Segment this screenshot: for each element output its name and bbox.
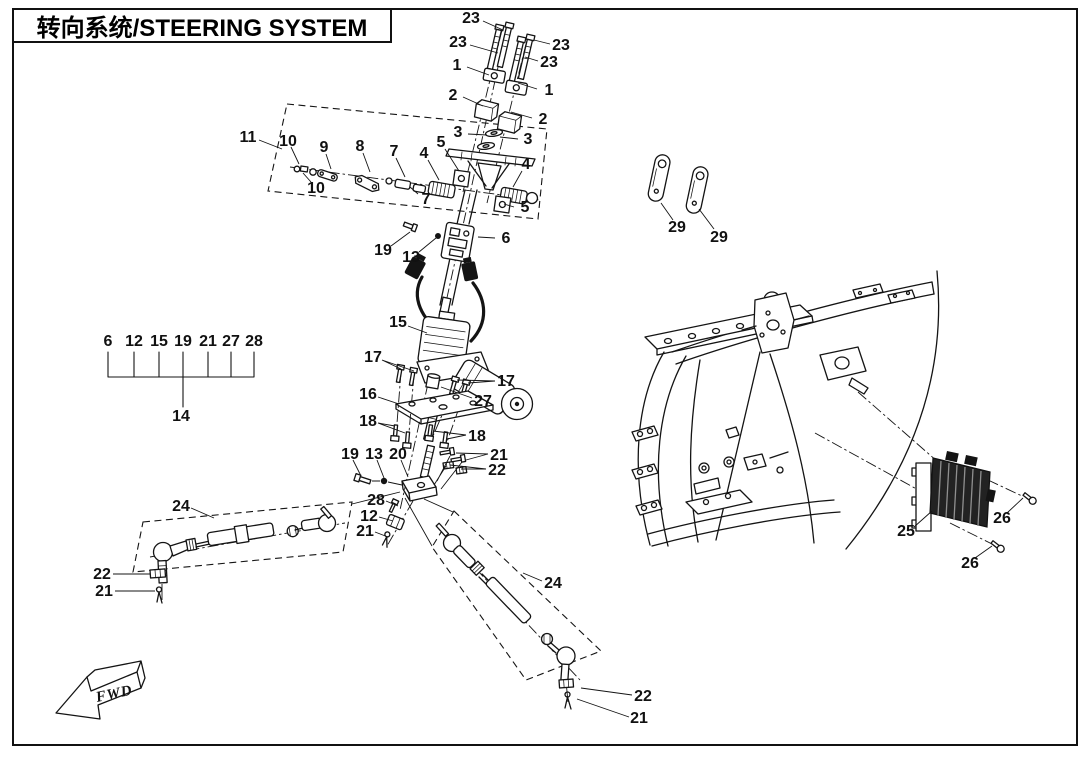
callout-9: 9 bbox=[320, 139, 329, 156]
page-title: 转向系统/STEERING SYSTEM bbox=[37, 8, 368, 43]
callout-5: 5 bbox=[437, 134, 446, 151]
callout-26: 26 bbox=[961, 555, 979, 572]
callout-23: 23 bbox=[462, 10, 480, 27]
washer bbox=[477, 142, 495, 151]
strap-29 bbox=[647, 153, 671, 202]
strap-29 bbox=[685, 165, 709, 214]
callout-24: 24 bbox=[172, 498, 190, 515]
callout-29: 29 bbox=[710, 229, 728, 246]
callout-3: 3 bbox=[454, 124, 463, 141]
bolt-26 bbox=[990, 539, 1006, 553]
callout-27: 27 bbox=[474, 393, 492, 410]
bolt-19-lower bbox=[354, 474, 371, 486]
callout-24: 24 bbox=[544, 575, 562, 592]
callout-21: 21 bbox=[356, 523, 374, 540]
callout-13: 13 bbox=[402, 249, 420, 266]
legend-group: 14 6121519212728 bbox=[104, 333, 263, 425]
ball-joint bbox=[154, 543, 173, 562]
castle-nut-22 bbox=[150, 569, 166, 578]
centerlines bbox=[150, 22, 1022, 680]
callout-4: 4 bbox=[522, 156, 531, 173]
legend-group-label: 14 bbox=[172, 408, 190, 425]
steering-tower bbox=[754, 293, 794, 353]
callout-18: 18 bbox=[359, 413, 377, 430]
callout-22: 22 bbox=[634, 688, 652, 705]
legend-item-12: 12 bbox=[125, 333, 143, 350]
jam-nut bbox=[186, 538, 197, 550]
callout-23: 23 bbox=[449, 34, 467, 51]
frame bbox=[632, 271, 939, 549]
handlebar-clamp-upper bbox=[483, 68, 506, 83]
tie-rod-body bbox=[207, 521, 275, 548]
callout-20: 20 bbox=[389, 446, 407, 463]
parts-diagram-page: 转向系统/STEERING SYSTEM bbox=[0, 0, 1090, 760]
callout-19: 19 bbox=[374, 242, 392, 259]
callout-2: 2 bbox=[539, 111, 548, 128]
legend-item-28: 28 bbox=[245, 333, 263, 350]
cable bbox=[471, 283, 484, 341]
callout-11: 11 bbox=[240, 129, 257, 146]
callout-21: 21 bbox=[95, 583, 113, 600]
title-box: 转向系统/STEERING SYSTEM bbox=[12, 8, 392, 43]
ball-13-lower bbox=[381, 478, 387, 484]
callout-10: 10 bbox=[279, 133, 297, 150]
callout-8: 8 bbox=[356, 138, 365, 155]
bolt-18 bbox=[391, 425, 400, 442]
callout-2: 2 bbox=[449, 87, 458, 104]
square-plate-5 bbox=[494, 196, 511, 213]
leader-lines bbox=[113, 21, 1023, 717]
legend-item-27: 27 bbox=[222, 333, 240, 350]
callout-28: 28 bbox=[367, 492, 385, 509]
legend-item-19: 19 bbox=[174, 333, 192, 350]
callout-10: 10 bbox=[307, 180, 325, 197]
legend-item-6: 6 bbox=[104, 333, 113, 350]
fwd-label: FWD bbox=[94, 683, 135, 707]
callout-19: 19 bbox=[341, 446, 359, 463]
callout-1: 1 bbox=[453, 57, 462, 74]
callout-7: 7 bbox=[390, 143, 399, 160]
straps bbox=[647, 153, 709, 214]
pitman-arm bbox=[402, 476, 436, 493]
bushing-4 bbox=[428, 181, 456, 198]
callout-23: 23 bbox=[540, 54, 558, 71]
callout-6: 6 bbox=[502, 230, 511, 247]
square-plate-5 bbox=[453, 170, 470, 187]
cotter-pin-21 bbox=[565, 692, 571, 709]
callout-23: 23 bbox=[552, 37, 570, 54]
bolt-19-upper bbox=[403, 221, 418, 232]
callout-22: 22 bbox=[93, 566, 111, 583]
callout-7: 7 bbox=[422, 191, 431, 208]
bolt-26 bbox=[1022, 491, 1038, 505]
castle-nut-22 bbox=[559, 679, 574, 688]
callout-4: 4 bbox=[420, 145, 429, 162]
riser-block bbox=[474, 99, 499, 122]
ball-joint bbox=[557, 647, 575, 665]
callout-17: 17 bbox=[364, 349, 382, 366]
callout-16: 16 bbox=[359, 386, 377, 403]
diagram-canvas: FWD 14 6121519212728 2323232311223354451… bbox=[0, 0, 1090, 760]
tie-rod-right bbox=[436, 523, 575, 709]
callout-3: 3 bbox=[524, 131, 533, 148]
legend-item-21: 21 bbox=[199, 333, 217, 350]
handlebar-clamp-upper bbox=[505, 80, 528, 95]
bolt-18 bbox=[440, 431, 450, 448]
tie-rod-left bbox=[150, 507, 336, 603]
callout-13: 13 bbox=[365, 446, 383, 463]
column-bracket-6 bbox=[441, 222, 475, 262]
spacer-27 bbox=[426, 373, 440, 389]
callout-15: 15 bbox=[389, 314, 407, 331]
callout-26: 26 bbox=[993, 510, 1011, 527]
washer bbox=[485, 129, 503, 138]
fwd-arrow: FWD bbox=[56, 661, 145, 719]
cotter-pin-21 bbox=[382, 531, 391, 547]
legend-item-15: 15 bbox=[150, 333, 168, 350]
callout-25: 25 bbox=[897, 523, 915, 540]
callout-22: 22 bbox=[488, 462, 506, 479]
link-8 bbox=[353, 174, 381, 193]
tie-rod-body bbox=[485, 576, 532, 624]
spacer-7 bbox=[395, 179, 411, 189]
callout-17: 17 bbox=[497, 373, 515, 390]
callout-1: 1 bbox=[545, 82, 554, 99]
column-stem bbox=[478, 163, 501, 190]
bushing-12 bbox=[386, 514, 405, 530]
callout-5: 5 bbox=[521, 199, 530, 216]
callout-18: 18 bbox=[468, 428, 486, 445]
callout-29: 29 bbox=[668, 219, 686, 236]
callout-21: 21 bbox=[630, 710, 648, 727]
cotter-pin-21 bbox=[157, 587, 163, 603]
